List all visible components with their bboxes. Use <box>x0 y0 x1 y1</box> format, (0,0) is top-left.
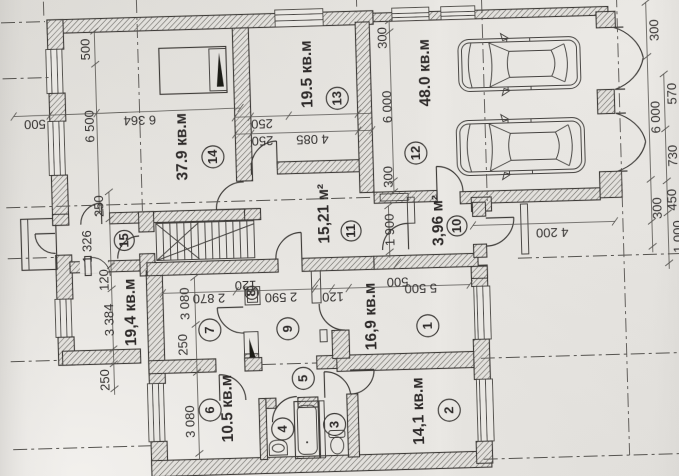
svg-text:120: 120 <box>96 269 112 291</box>
svg-text:4 085: 4 085 <box>296 132 329 148</box>
svg-text:4: 4 <box>275 424 290 432</box>
svg-text:12: 12 <box>408 146 423 161</box>
svg-text:11: 11 <box>343 224 358 238</box>
svg-text:19.5 кв.м: 19.5 кв.м <box>298 40 317 108</box>
svg-text:5 500: 5 500 <box>404 281 437 297</box>
svg-text:7: 7 <box>202 326 217 334</box>
svg-text:450: 450 <box>664 189 679 211</box>
svg-text:6 000: 6 000 <box>647 101 663 134</box>
svg-text:2 870: 2 870 <box>192 291 225 307</box>
svg-text:730: 730 <box>665 145 679 167</box>
svg-text:2: 2 <box>441 406 456 414</box>
svg-text:6 500: 6 500 <box>82 110 98 143</box>
svg-text:300: 300 <box>646 19 662 41</box>
svg-text:570: 570 <box>664 83 679 105</box>
svg-text:9: 9 <box>280 325 295 333</box>
svg-text:1 326: 1 326 <box>79 230 95 263</box>
svg-text:5: 5 <box>295 375 310 383</box>
svg-text:1 900: 1 900 <box>382 213 398 246</box>
svg-text:48.0 кв.м: 48.0 кв.м <box>416 39 435 107</box>
svg-text:4 200: 4 200 <box>536 225 569 241</box>
svg-text:250: 250 <box>251 133 273 149</box>
svg-text:37.9 кв.м: 37.9 кв.м <box>173 113 192 181</box>
svg-text:19,4 кв.м: 19,4 кв.м <box>121 278 140 346</box>
svg-text:250: 250 <box>91 195 107 217</box>
svg-text:120: 120 <box>322 289 344 305</box>
svg-text:10: 10 <box>449 218 464 233</box>
svg-text:3 384: 3 384 <box>101 303 117 336</box>
svg-text:1: 1 <box>420 322 435 330</box>
svg-text:120: 120 <box>235 278 257 294</box>
svg-text:15: 15 <box>116 233 131 248</box>
svg-text:3: 3 <box>327 421 342 429</box>
svg-text:250: 250 <box>175 334 191 356</box>
svg-text:300: 300 <box>374 27 390 49</box>
svg-text:500: 500 <box>77 38 93 60</box>
svg-text:2 590: 2 590 <box>264 290 297 306</box>
svg-text:14,1 кв.м: 14,1 кв.м <box>409 377 428 445</box>
svg-text:1 000: 1 000 <box>670 220 679 253</box>
svg-text:300: 300 <box>380 166 396 188</box>
svg-text:15,21 м²: 15,21 м² <box>315 184 334 244</box>
svg-text:16,9 кв.м: 16,9 кв.м <box>362 282 381 350</box>
svg-text:3 080: 3 080 <box>182 405 198 438</box>
svg-text:13: 13 <box>329 91 344 106</box>
svg-text:3,96 м²: 3,96 м² <box>429 195 447 247</box>
svg-text:6 364: 6 364 <box>123 112 156 128</box>
svg-text:14: 14 <box>205 149 220 165</box>
svg-text:250: 250 <box>251 116 273 132</box>
svg-text:6: 6 <box>202 406 217 414</box>
svg-text:250: 250 <box>97 369 113 391</box>
svg-text:300: 300 <box>649 197 665 219</box>
svg-text:500: 500 <box>24 117 46 133</box>
svg-text:6 000: 6 000 <box>379 90 395 123</box>
